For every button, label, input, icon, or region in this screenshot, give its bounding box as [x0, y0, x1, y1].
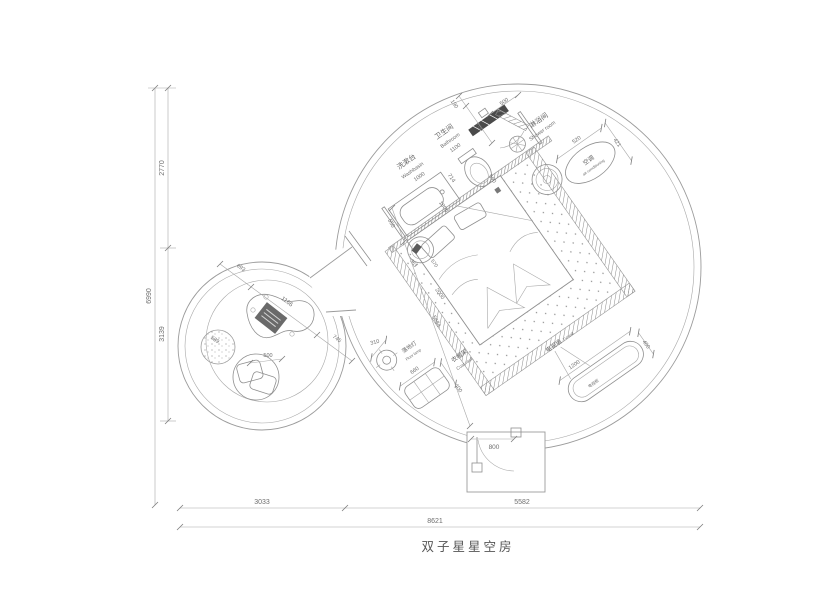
- dim-chair: 500: [247, 353, 285, 366]
- dim-left-segments: 2770 3139: [148, 85, 176, 424]
- dim-bottom-segments: 3033 5582: [177, 499, 703, 511]
- svg-text:520: 520: [571, 135, 582, 145]
- svg-text:1200: 1200: [568, 359, 581, 371]
- svg-text:500: 500: [263, 353, 272, 359]
- dim-bottom-total: 8621: [177, 518, 703, 530]
- pouf: [201, 330, 235, 364]
- svg-text:500: 500: [499, 97, 510, 107]
- svg-text:1166: 1166: [280, 296, 295, 309]
- shower-fixture-icon: [468, 104, 509, 136]
- entry-vestibule: 800: [467, 428, 545, 492]
- svg-text:693: 693: [235, 263, 246, 273]
- drawing-title: 双子星星空房: [421, 539, 514, 554]
- svg-text:5582: 5582: [514, 499, 530, 506]
- tv-cabinet: 电视柜: [563, 336, 648, 407]
- floor-lamp: [369, 342, 405, 378]
- svg-text:800: 800: [489, 444, 500, 451]
- svg-text:3139: 3139: [159, 326, 166, 342]
- svg-text:3033: 3033: [254, 499, 270, 506]
- svg-text:1100: 1100: [449, 142, 462, 154]
- svg-text:190: 190: [449, 99, 459, 110]
- svg-text:6990: 6990: [146, 288, 153, 304]
- floor-plan-canvas: 空调 air-conditioning 520 421: [0, 0, 837, 592]
- svg-text:8621: 8621: [427, 518, 443, 525]
- svg-text:660: 660: [409, 366, 420, 376]
- washbasin-label: 洗漱台 Washbasin 1000: [393, 150, 430, 188]
- svg-text:550: 550: [386, 218, 396, 229]
- svg-text:310: 310: [370, 339, 380, 347]
- dim-tv-depth: 400: [634, 329, 658, 359]
- laptop-icon: [255, 302, 288, 334]
- tv-cabinet-label: 电视柜: [586, 377, 599, 389]
- passage: [308, 231, 371, 316]
- svg-text:2770: 2770: [159, 160, 166, 176]
- dim-ac-width: 520: [551, 121, 606, 164]
- floor-plan-drawing: 空调 air-conditioning 520 421: [0, 0, 837, 592]
- shower-door: [496, 109, 529, 148]
- bathroom-label: 卫生间 Bathroom 1100: [432, 121, 466, 157]
- svg-text:745: 745: [331, 334, 342, 344]
- lounge-chair: [233, 354, 279, 400]
- dim-left-total: 6990: [146, 85, 158, 508]
